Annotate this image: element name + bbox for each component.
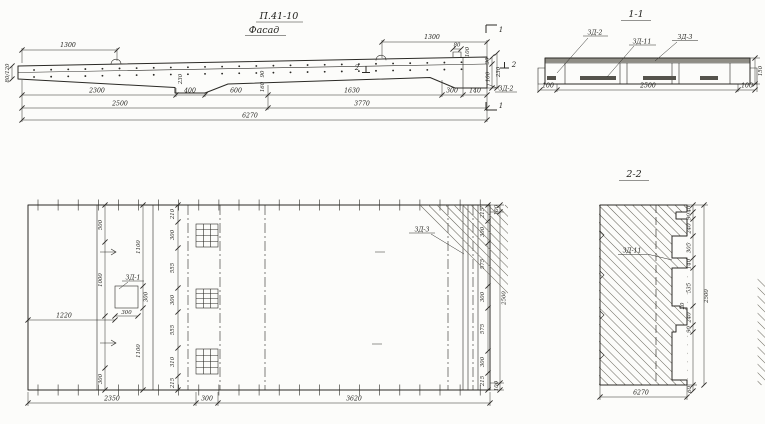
label-zd3-plan: ЗД-3 — [415, 227, 430, 234]
lifting-loop-right — [376, 55, 386, 60]
s22-dim: 535 — [687, 282, 693, 293]
zd11-leader-s22 — [618, 254, 672, 260]
dim-140: 140 — [469, 88, 481, 95]
section-mark-2-right-num: 2 — [511, 61, 517, 69]
mesh-grids — [196, 224, 218, 374]
label-zd2-s11: ЗД-2 — [588, 30, 603, 37]
dim-6270-s22: 6270 — [633, 390, 649, 397]
s22-dim: 305 — [687, 242, 693, 253]
mesh-dim: 210 — [170, 208, 176, 220]
dim-left-end: 80/120 — [5, 63, 11, 83]
label-zd2-elevation: ЗД-2 — [499, 86, 514, 93]
label-zd3-s11: ЗД-3 — [678, 34, 693, 41]
section-1-1-view: 1-1 ЗД-2 ЗД-11 ЗД-3 100 2500 100 150 — [538, 9, 764, 92]
opening-square — [115, 286, 138, 308]
dim-150-s11: 150 — [758, 65, 764, 76]
dim-end-100: 100 — [486, 71, 492, 82]
right-dim: 215 — [480, 375, 486, 387]
section-mark-1-bottom-num: 1 — [499, 102, 503, 110]
dim-6270: 6270 — [242, 113, 258, 120]
dim-400: 400 — [183, 88, 196, 95]
slab-top-flange — [545, 58, 750, 63]
section-mark-1-top-num: 1 — [499, 26, 503, 34]
dim-300-square-side: 300 — [144, 291, 150, 302]
dim-1000: 1000 — [98, 273, 104, 287]
dim-300: 300 — [446, 88, 458, 95]
elevation-view: 1300 1300 80 100 80/120 230 90 160 30 10… — [5, 25, 517, 122]
dim-3770: 3770 — [354, 101, 370, 108]
section-mark-2-mid — [362, 67, 370, 73]
section-mark-2-mid-num: 2 — [354, 64, 360, 72]
plan-view: ЗД-1 ЗД-3 500 1000 300 1100 300 1100 122… — [28, 200, 508, 407]
dim-1300-right: 1300 — [424, 34, 440, 41]
dim-300-square: 300 — [121, 310, 132, 316]
dim-2500-s22: 2500 — [704, 289, 710, 304]
dim-1630: 1630 — [344, 88, 360, 95]
dim-2350: 2350 — [103, 396, 120, 403]
slab-ribs — [565, 63, 730, 84]
dim-100-right-s11: 100 — [741, 83, 753, 90]
section-2-2-view: 2-2 ЗД-11 40 90 240 305 140 535 20 240 9… — [420, 169, 765, 400]
mesh-dim: 300 — [170, 294, 176, 305]
dim-160-step: 160 — [260, 81, 266, 92]
drawing-sheet: П.41-10 Фасад 1300 1300 80 100 80/120 23… — [0, 0, 765, 424]
drawing-code: П.41-10 — [259, 11, 299, 22]
dim-1100-bottom: 1100 — [136, 344, 142, 358]
s22-dim: 240 — [687, 312, 693, 324]
s22-dim: 240 — [687, 223, 693, 235]
section-mark-1-top — [486, 25, 497, 33]
zd1-leader — [119, 281, 144, 289]
dim-90-step: 90 — [260, 70, 266, 77]
zd3-leader-plan — [409, 233, 464, 254]
anchor-plate — [700, 76, 718, 80]
mesh-dim: 215 — [170, 377, 176, 389]
dim-2500-s11: 2500 — [639, 83, 656, 90]
zd2-leader-11 — [557, 36, 608, 73]
plan-dash-marks — [372, 252, 385, 344]
dim-1100-top: 1100 — [136, 240, 142, 254]
anchor-plate — [547, 76, 556, 80]
section-1-1-title: 1-1 — [628, 9, 643, 20]
section-2-2-title: 2-2 — [625, 169, 641, 180]
dim-100-tab: 100 — [465, 46, 471, 57]
section-mark-1-bottom — [486, 102, 497, 110]
beam-top-tab — [453, 52, 461, 57]
mesh-dim: 555 — [170, 324, 176, 335]
dim-2500-outer: 2500 — [502, 291, 508, 306]
label-zd1: ЗД-1 — [126, 275, 141, 282]
drawing-canvas: П.41-10 Фасад 1300 1300 80 100 80/120 23… — [0, 0, 765, 424]
dim-100-outer-bottom: 100 — [494, 380, 500, 391]
mesh-dim: 555 — [170, 262, 176, 273]
right-dim: 300 — [480, 356, 486, 367]
mesh-dim: 310 — [170, 356, 176, 367]
dim-230-web: 230 — [178, 73, 184, 85]
mesh-dim: 300 — [170, 229, 176, 240]
plan-arrows — [100, 249, 116, 346]
label-zd11-s22: ЗД-11 — [623, 248, 642, 255]
plan-dim-lines — [28, 205, 500, 403]
anchor-plate — [643, 76, 676, 80]
stud-row-bottom — [34, 69, 476, 77]
dim-600: 600 — [230, 88, 242, 95]
dim-2500: 2500 — [111, 101, 128, 108]
dim-2300: 2300 — [88, 88, 105, 95]
dim-500: 500 — [98, 219, 104, 230]
s22-dim: 20 — [680, 302, 686, 310]
stud-row-top — [34, 62, 476, 70]
label-zd11-s11: ЗД-11 — [633, 39, 652, 46]
dim-1300-left: 1300 — [60, 42, 76, 49]
dim-100-left-s11: 100 — [542, 83, 554, 90]
dim-end-30: 30 — [485, 57, 491, 64]
dim-300-bottom: 300 — [201, 396, 213, 403]
right-dim: 575 — [480, 258, 486, 269]
dimension-tick-slashes — [9, 39, 757, 405]
view-title-facade: Фасад — [249, 25, 280, 36]
elevation-dimensions — [12, 40, 499, 122]
anchor-plate — [580, 76, 616, 80]
beam-flange-line — [18, 64, 487, 73]
dim-1220: 1220 — [56, 313, 72, 320]
title-block: П.41-10 Фасад — [245, 11, 303, 36]
right-dim: 300 — [480, 291, 486, 302]
dim-3620: 3620 — [346, 396, 362, 403]
right-dim: 575 — [480, 323, 486, 334]
dim-300-left: 300 — [98, 373, 104, 384]
